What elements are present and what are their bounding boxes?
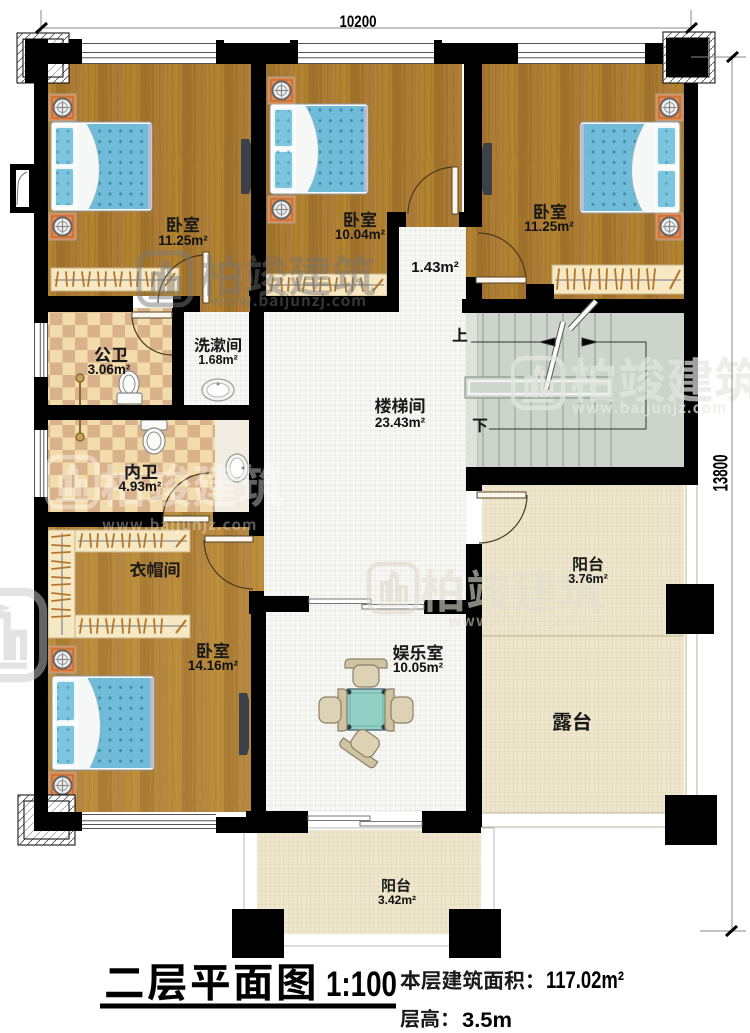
svg-text:1.43m²: 1.43m²	[411, 259, 459, 276]
svg-text:11.25m²: 11.25m²	[158, 233, 208, 248]
svg-text:4.93m²: 4.93m²	[119, 479, 162, 494]
svg-text:3.06m²: 3.06m²	[88, 362, 131, 377]
svg-text:13800: 13800	[710, 455, 733, 492]
svg-text:3.5m: 3.5m	[462, 1009, 512, 1032]
svg-text:117.02m²: 117.02m²	[546, 967, 624, 994]
svg-text:3.42m²: 3.42m²	[378, 893, 416, 907]
svg-text:10200: 10200	[340, 12, 377, 31]
svg-text:11.25m²: 11.25m²	[524, 219, 574, 234]
svg-text:23.43m²: 23.43m²	[375, 415, 426, 430]
svg-text:14.16m²: 14.16m²	[188, 658, 239, 673]
svg-text:10.04m²: 10.04m²	[335, 227, 386, 242]
svg-text:10.05m²: 10.05m²	[393, 660, 444, 675]
svg-text:3.76m²: 3.76m²	[568, 572, 608, 586]
svg-text:1.68m²: 1.68m²	[198, 353, 238, 367]
svg-text:1:100: 1:100	[326, 965, 397, 1004]
